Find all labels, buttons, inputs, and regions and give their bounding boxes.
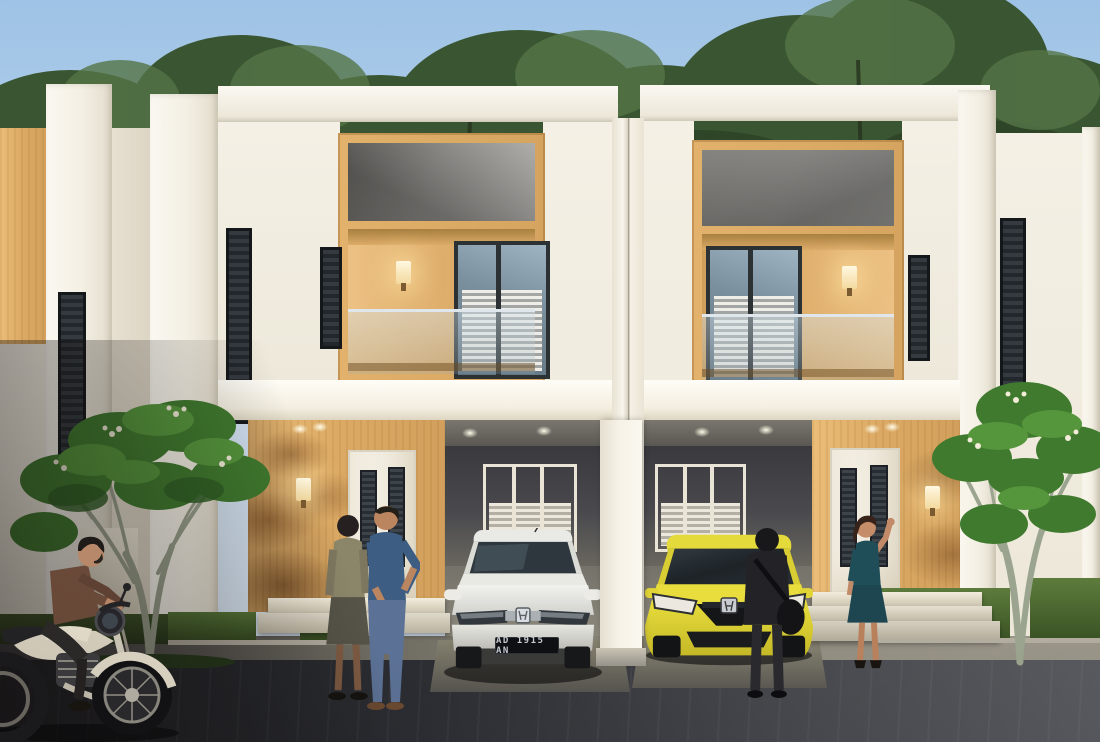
right-house-floor-slab (640, 380, 960, 420)
carport-downlight (462, 428, 478, 438)
frangipani-tree-right (928, 328, 1100, 668)
right-house-feature-box (692, 140, 904, 385)
scene: AD 1915 AN (0, 0, 1100, 742)
pillar-base (596, 648, 646, 666)
left-house-floor-slab (218, 380, 618, 420)
balcony-sconce-right-house (842, 266, 857, 289)
left-house-balcony (348, 229, 535, 371)
license-plate: AD 1915 AN (495, 637, 559, 654)
carport-downlight (694, 427, 710, 437)
balcony-sconce-left-house (396, 261, 411, 284)
person-with-bag (733, 524, 807, 702)
carport-downlight (536, 426, 552, 436)
entrance-sconce-left-house (296, 478, 311, 501)
right-house-balcony (702, 234, 894, 377)
waving-woman (838, 510, 898, 678)
motorcycle-rider (0, 527, 184, 742)
left-house-upper-recess (348, 143, 535, 221)
right-house-roof-beam (640, 85, 990, 121)
carport-divider-pillar (600, 420, 642, 662)
left-house-roof-beam (218, 86, 618, 122)
person-blue-polo (356, 502, 420, 714)
porch-downlight (312, 422, 328, 432)
carport-downlight (758, 425, 774, 435)
left-house-feature-box (338, 133, 545, 383)
porch-downlight (292, 424, 308, 434)
right-house-balcony-side-window (908, 255, 930, 361)
white-car (444, 528, 602, 686)
right-house-upper-recess (702, 150, 894, 226)
porch-downlight (884, 422, 900, 432)
left-house-balcony-side-window (320, 247, 342, 349)
far-left-wood-panel (0, 128, 48, 346)
right-carport-ceiling (640, 420, 812, 448)
porch-downlight (864, 424, 880, 434)
